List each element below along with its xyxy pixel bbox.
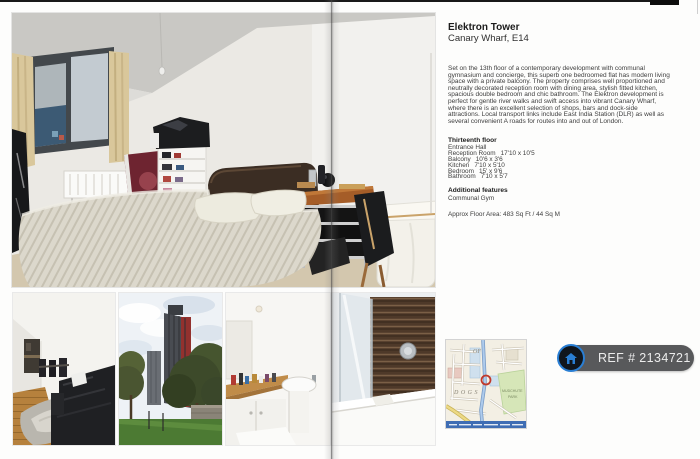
room-row-bathroom: Bathroom 7'10 x 5'7 [448,174,535,180]
photo-bedroom [12,13,435,287]
additional-features-item: Communal Gym [448,195,494,202]
page-fold-line [331,0,332,459]
room-size: 7'10 x 5'7 [481,174,508,180]
photo-tower-exterior [119,293,222,445]
bedroom-illustration [12,13,435,287]
property-description: Set on the 13th floor of a contemporary … [448,66,671,125]
map-label-dogs: DOGS [453,390,480,396]
map-label-park: PARK [508,395,518,399]
floor-heading: Thirteenth floor [448,137,497,144]
tower-illustration [119,293,222,445]
room-size: 17'10 x 10'5 [501,151,535,157]
property-address: Canary Wharf, E14 [448,33,529,44]
room-dimension-list: Entrance Hall Reception Room 17'10 x 10'… [448,145,535,180]
scanned-property-brochure: Elektron Tower Canary Wharf, E14 Set on … [0,0,700,459]
map-label-of: OF [473,349,481,355]
map-illustration: OF DOGS MUDCHUTE PARK [446,340,526,428]
scan-page-edge [697,0,698,14]
property-title: Elektron Tower [448,22,520,33]
map-label-mudchute: MUDCHUTE [502,389,523,393]
photo-living-room [13,293,115,445]
property-details: Elektron Tower Canary Wharf, E14 Set on … [448,22,674,322]
vanity-illustration [226,293,330,445]
scan-edge-mark [650,0,679,5]
additional-features-heading: Additional features [448,187,508,194]
floor-area-text: Approx Floor Area: 483 Sq Ft / 44 Sq M [448,211,560,218]
photo-bathroom-vanity [226,293,330,445]
room-name: Bathroom [448,174,476,180]
photo-bathtub [332,293,435,445]
bathtub-illustration [332,293,435,445]
living-room-illustration [13,293,115,445]
scan-edge-line [0,0,679,2]
location-map: OF DOGS MUDCHUTE PARK [446,340,526,428]
ref-label: REF # 2134721 [598,351,691,365]
home-icon [557,344,585,372]
ref-badge: REF # 2134721 [564,345,694,371]
